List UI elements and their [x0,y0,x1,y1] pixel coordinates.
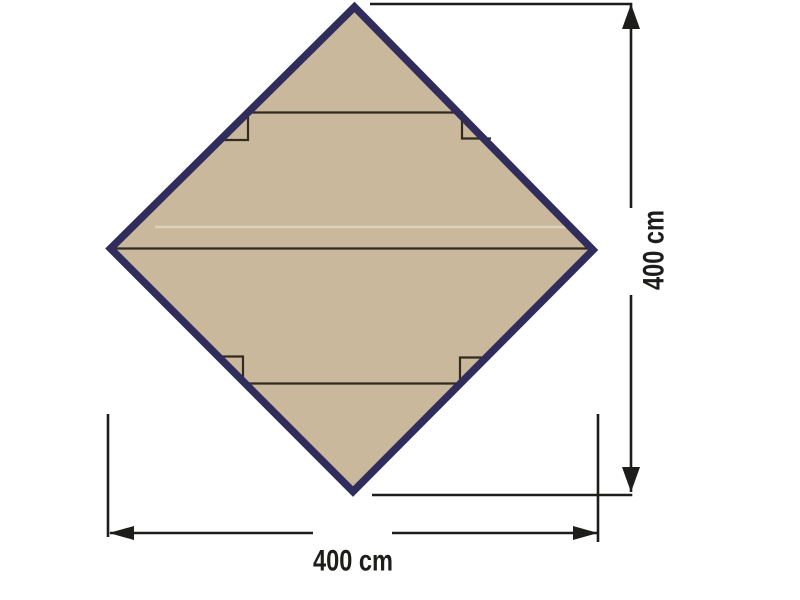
height-dimension-label: 400 cm [638,210,671,290]
arrow-left-icon [109,526,134,540]
arrow-right-icon [573,526,598,540]
arrow-down-icon [622,467,640,492]
width-dimension-label: 400 cm [313,545,393,578]
tarp-dimension-diagram: 400 cm 400 cm [0,0,800,600]
arrow-up-icon [622,4,640,29]
diagram-svg: 400 cm 400 cm [0,0,800,600]
